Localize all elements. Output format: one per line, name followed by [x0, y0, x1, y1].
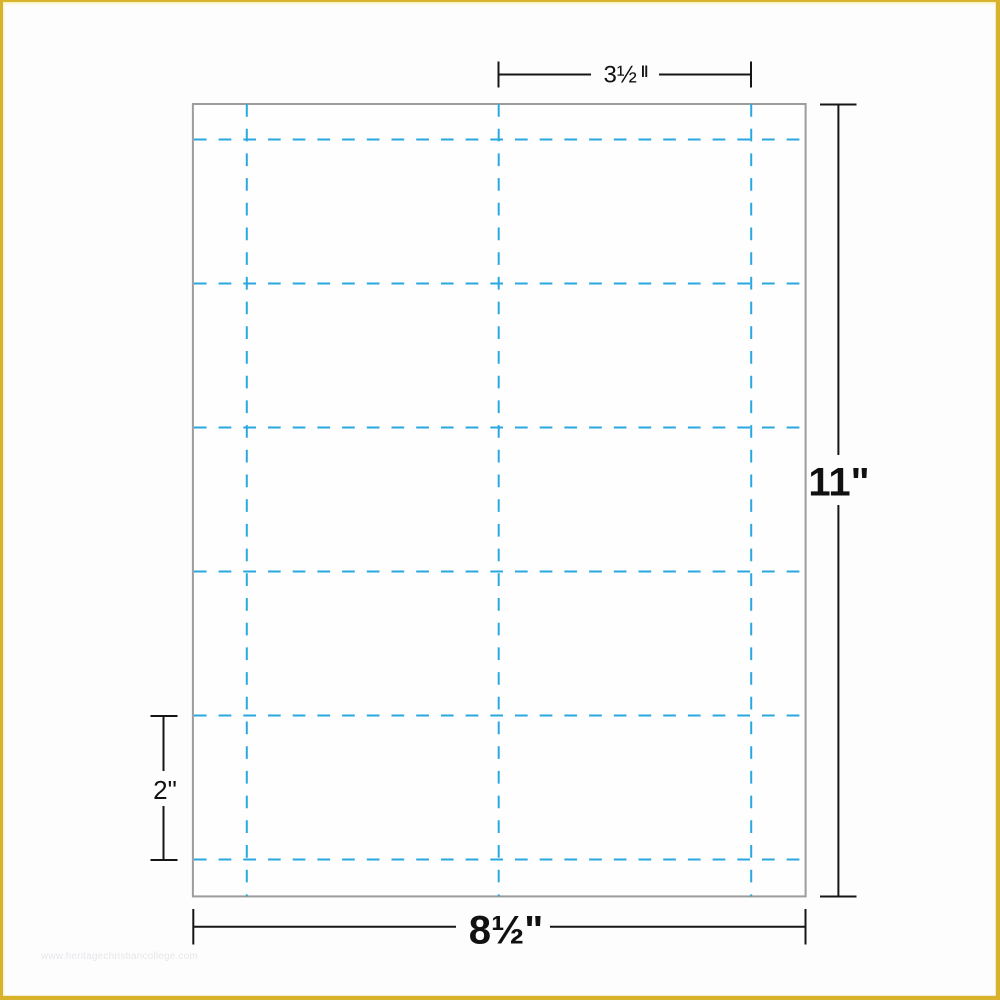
svg-text:11": 11": [808, 461, 869, 505]
svg-text:8½": 8½": [469, 909, 544, 953]
svg-text:2": 2": [153, 775, 177, 805]
svg-text:www.heritagechristiancollege.c: www.heritagechristiancollege.com: [40, 951, 198, 962]
svg-text:3½: 3½: [604, 62, 637, 89]
